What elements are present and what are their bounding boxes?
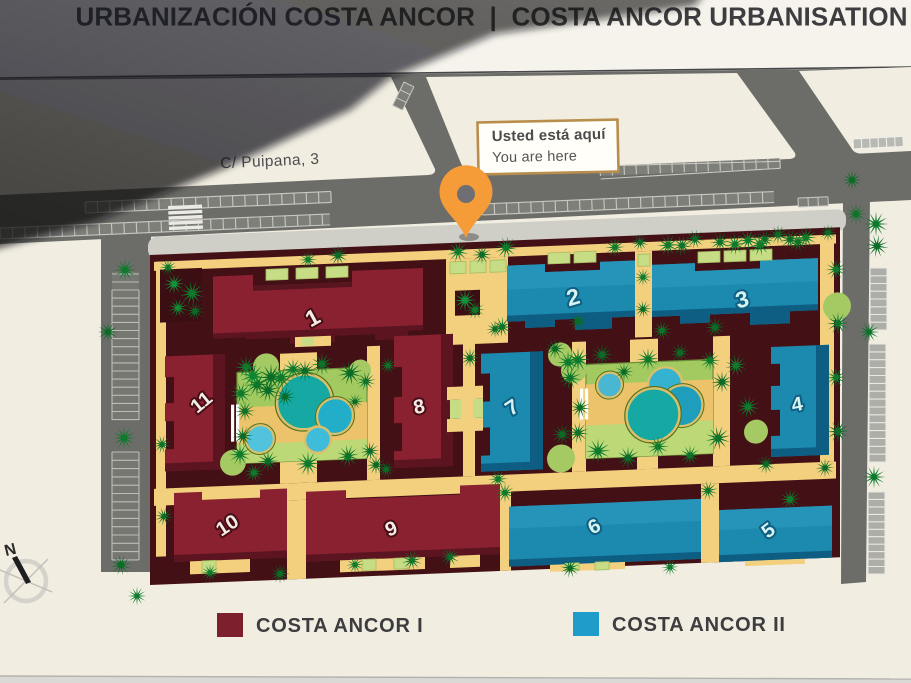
svg-text:COSTA ANCOR II: COSTA ANCOR II [612,614,786,636]
svg-text:Usted está aquí: Usted está aquí [492,126,607,145]
svg-text:You are here: You are here [492,148,577,166]
svg-text:COSTA ANCOR I: COSTA ANCOR I [256,615,423,637]
